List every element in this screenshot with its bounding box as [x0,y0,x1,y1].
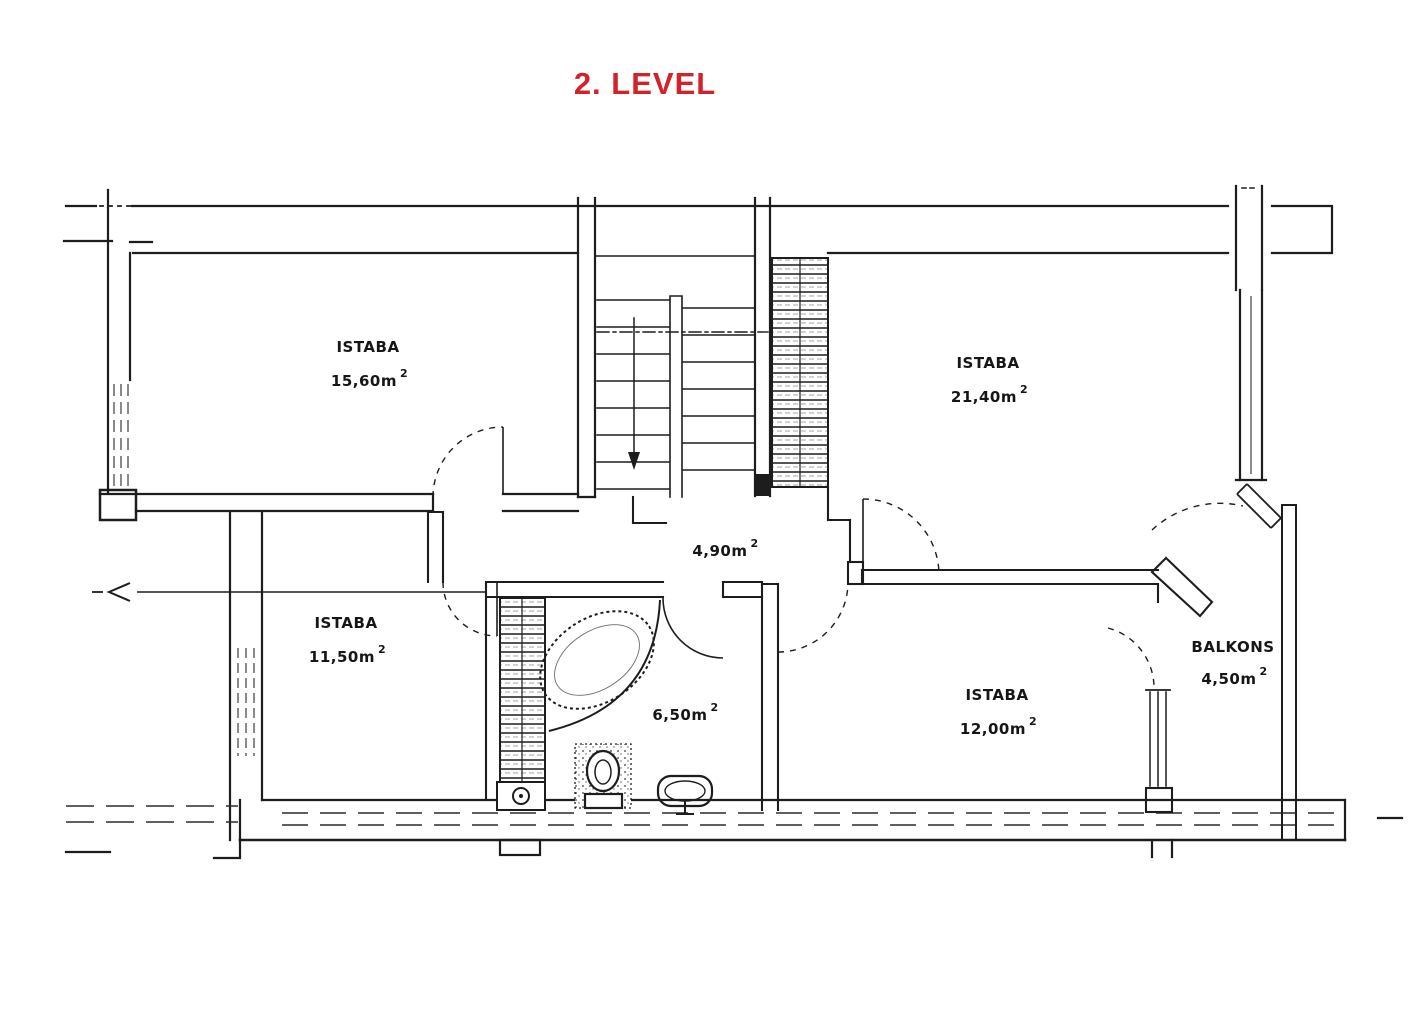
room-label-istaba-21-40: ISTABA 21,40m2 [951,348,1025,412]
room-area: 4,50m2 [1191,661,1274,693]
room-name: ISTABA [331,332,405,362]
toilet-icon [575,744,631,808]
room-name: ISTABA [951,348,1025,378]
sink-icon [658,776,712,814]
room-name: ISTABA [309,608,383,638]
room-name: ISTABA [960,680,1034,710]
staircase [578,198,771,497]
entrance-arrow [92,583,486,601]
door-swings [433,427,1281,690]
floor-plan-drawing [0,0,1408,1034]
room-label-istaba-15-60: ISTABA 15,60m2 [331,332,405,396]
floor-plan-page: { "title": { "text": "2. LEVEL", "color"… [0,0,1408,1034]
room-label-istaba-12-00: ISTABA 12,00m2 [960,680,1034,744]
bathroom-area-label: 6,50m2 [652,702,715,724]
room-area: 21,40m2 [951,378,1025,412]
facade-dashed-lines [66,806,238,822]
room-area: 11,50m2 [309,638,383,672]
balcony-west-railing [1150,692,1166,786]
hall-area-label: 4,90m2 [692,538,755,560]
room-name: BALKONS [1191,634,1274,661]
room-area: 12,00m2 [960,710,1034,744]
room-label-istaba-11-50: ISTABA 11,50m2 [309,608,383,672]
balcony-east-railing [1282,505,1296,838]
exterior-walls [64,186,1402,858]
room-area: 15,60m2 [331,362,405,396]
window-glazing [114,296,1336,825]
balcony-label: BALKONS 4,50m2 [1191,634,1274,693]
bathroom-duct [497,598,545,810]
ventilation-shaft [772,258,828,487]
